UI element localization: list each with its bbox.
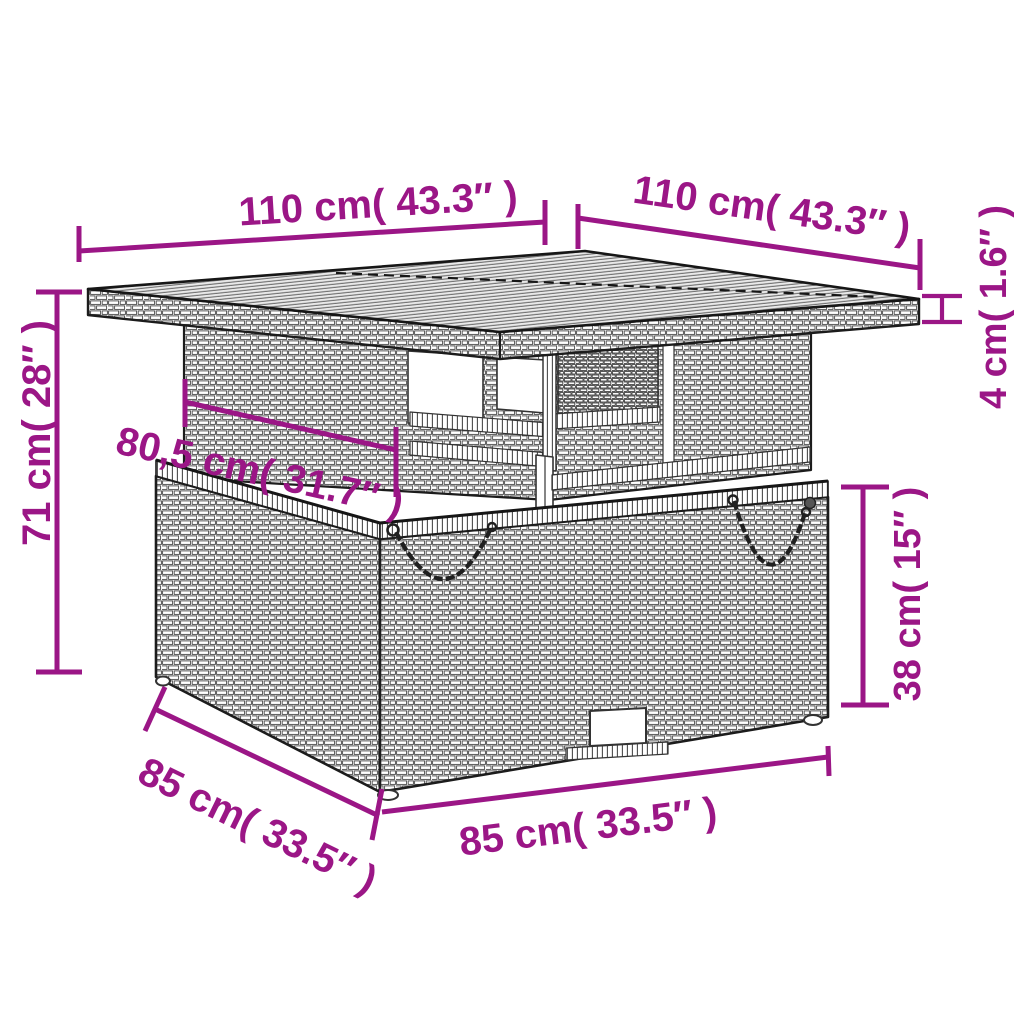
dim-top-thickness-label: 4 cm( 1.6″ ) (973, 205, 1015, 409)
foot-right (804, 715, 822, 725)
apron-window-right (497, 357, 545, 413)
diagram-svg: 110 cm( 43.3″ ) 110 cm( 43.3″ ) 4 cm( 1.… (0, 0, 1024, 1024)
dim-base-height-label: 38 cm( 15″ ) (887, 487, 929, 702)
apron-side-post (663, 338, 674, 470)
foot-left (156, 677, 170, 686)
dim-total-height-label: 71 cm( 28″ ) (15, 320, 59, 546)
product-dimension-diagram: 110 cm( 43.3″ ) 110 cm( 43.3″ ) 4 cm( 1.… (0, 0, 1024, 1024)
dim-base-width-tick-right (828, 746, 829, 776)
base-slot (590, 708, 646, 746)
apron-corner-post (543, 353, 556, 471)
